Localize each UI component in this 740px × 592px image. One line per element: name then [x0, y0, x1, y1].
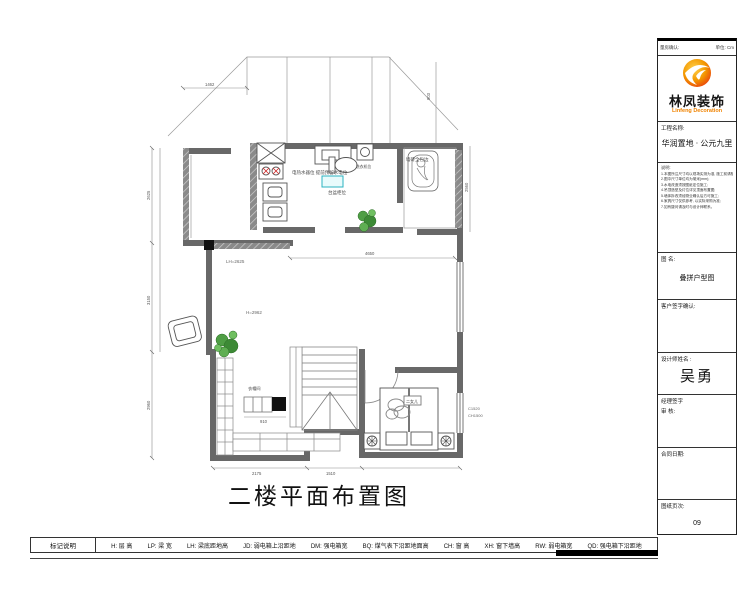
note-line: 7.如有疑问请及时与设计师联系。 — [661, 205, 733, 211]
title-block-header: 量房确认: 单位: Cm — [658, 41, 736, 56]
svg-text:903: 903 — [426, 92, 431, 100]
contract-date-section: 合同日期: — [658, 448, 736, 500]
manager-sign-label: 经理签字 — [658, 395, 736, 405]
legend-item: RW: 弱电箱宽 — [535, 541, 572, 550]
gas-stove — [259, 164, 283, 179]
page-number-value: 09 — [658, 520, 736, 527]
svg-text:洗衣机位: 洗衣机位 — [356, 164, 371, 169]
legend-item: DM: 强电箱宽 — [311, 541, 348, 550]
svg-text:2960: 2960 — [146, 400, 151, 410]
svg-text:台盆柜位: 台盆柜位 — [328, 189, 346, 196]
svg-text:1510: 1510 — [326, 471, 336, 476]
page-number-label: 图纸页次: — [658, 500, 736, 510]
washing-machine — [357, 144, 373, 160]
highlight-box — [322, 176, 343, 187]
legend-items: H: 层 高 LP: 梁 宽 LH: 梁底距地高 JD: 弱电箱上沿距地 DM:… — [96, 541, 657, 550]
review-label: 审 核: — [658, 405, 736, 415]
designer-name: 吴勇 — [658, 365, 736, 386]
customer-sign-label: 客户签字确认: — [658, 300, 736, 310]
flue-shaft — [257, 143, 285, 163]
svg-text:2175: 2175 — [252, 471, 262, 476]
stair-side-cabinet — [290, 347, 302, 427]
notes-section: 说明: 1.本图所注尺寸均以现场实测为准, 施工前请核实; 2.图中尺寸单位均为… — [658, 163, 736, 253]
legend-item: XH: 窗下墙高 — [484, 541, 520, 550]
svg-text:4650: 4650 — [365, 251, 375, 256]
plant-1 — [215, 331, 239, 357]
measure-confirm-label: 量房确认: — [660, 45, 679, 51]
svg-text:CH1500: CH1500 — [468, 413, 483, 418]
legend-item: LP: 梁 宽 — [148, 541, 172, 550]
company-logo-section: 林凤装饰 Linfeng Decoration — [658, 56, 736, 122]
legend-item: H: 层 高 — [111, 541, 132, 550]
legend-item: JD: 弱电箱上沿距地 — [243, 541, 296, 550]
svg-text:二女儿: 二女儿 — [406, 398, 418, 404]
svg-text:电热水器位 提前预留水电位: 电热水器位 提前预留水电位 — [292, 169, 348, 176]
svg-text:3150: 3150 — [146, 295, 151, 305]
cabinet-bottom — [233, 433, 340, 451]
project-section: 工程名称: 华润置地 · 公元九里 — [658, 122, 736, 163]
svg-text:2560: 2560 — [464, 182, 469, 192]
project-name: 华润置地 · 公元九里 — [658, 138, 736, 149]
unit-label: 单位: Cm — [716, 45, 735, 51]
svg-text:LH=2625: LH=2625 — [226, 259, 245, 264]
wardrobe-left — [217, 358, 233, 455]
bed — [380, 388, 438, 450]
border-line — [30, 558, 658, 559]
designer-section: 设计师姓名 : 吴勇 — [658, 353, 736, 395]
manager-sign-section: 经理签字 审 核: — [658, 395, 736, 448]
step-and-column — [244, 397, 286, 412]
contract-date-label: 合同日期: — [658, 448, 736, 458]
svg-text:910: 910 — [260, 419, 268, 424]
floor-plan-sheet: 1462 903 2625 2625 3150 2960 4650 2175 1… — [0, 0, 740, 592]
page-number-section: 图纸页次: 09 — [658, 500, 736, 538]
svg-text:1462: 1462 — [205, 82, 215, 87]
project-label: 工程名称: — [658, 122, 736, 132]
title-block: 量房确认: 单位: Cm 林凤装饰 Linfeng Decoration — [657, 38, 737, 535]
stairs — [302, 347, 357, 430]
svg-text:墙砖全包边: 墙砖全包边 — [406, 156, 429, 163]
company-name-en: Linfeng Decoration — [658, 108, 736, 116]
svg-text:衣帽间: 衣帽间 — [248, 385, 261, 392]
legend-item: QD: 强电箱下沿距地 — [587, 541, 641, 550]
drawing-name-label: 图 名: — [658, 253, 736, 263]
customer-sign-section: 客户签字确认: — [658, 300, 736, 353]
structural-column — [204, 240, 214, 250]
drawing-name-value: 叠拼户型图 — [658, 273, 736, 283]
floor-plan-drawing: 1462 903 2625 2625 3150 2960 4650 2175 1… — [0, 0, 660, 535]
roof-projection-lines — [168, 57, 458, 143]
legend-item: LH: 梁底距地高 — [187, 541, 228, 550]
svg-text:C1520: C1520 — [468, 406, 481, 411]
drawing-name-section: 图 名: 叠拼户型图 — [658, 253, 736, 300]
designer-label: 设计师姓名 : — [658, 353, 736, 363]
water-heater-units — [263, 183, 287, 221]
company-logo-icon — [658, 56, 736, 90]
svg-text:H=2962: H=2962 — [246, 310, 262, 315]
border-thick-bar — [556, 550, 658, 556]
svg-text:2625: 2625 — [146, 190, 151, 200]
legend-item: CH: 窗 高 — [444, 541, 470, 550]
company-name-cn: 林凤装饰 — [658, 95, 736, 108]
drawing-title: 二楼平面布置图 — [228, 477, 410, 511]
legend-item: BQ: 煤气表下沿距地面高 — [363, 541, 429, 550]
legend-caption: 标记说明 — [31, 538, 96, 552]
armchair — [167, 315, 202, 347]
